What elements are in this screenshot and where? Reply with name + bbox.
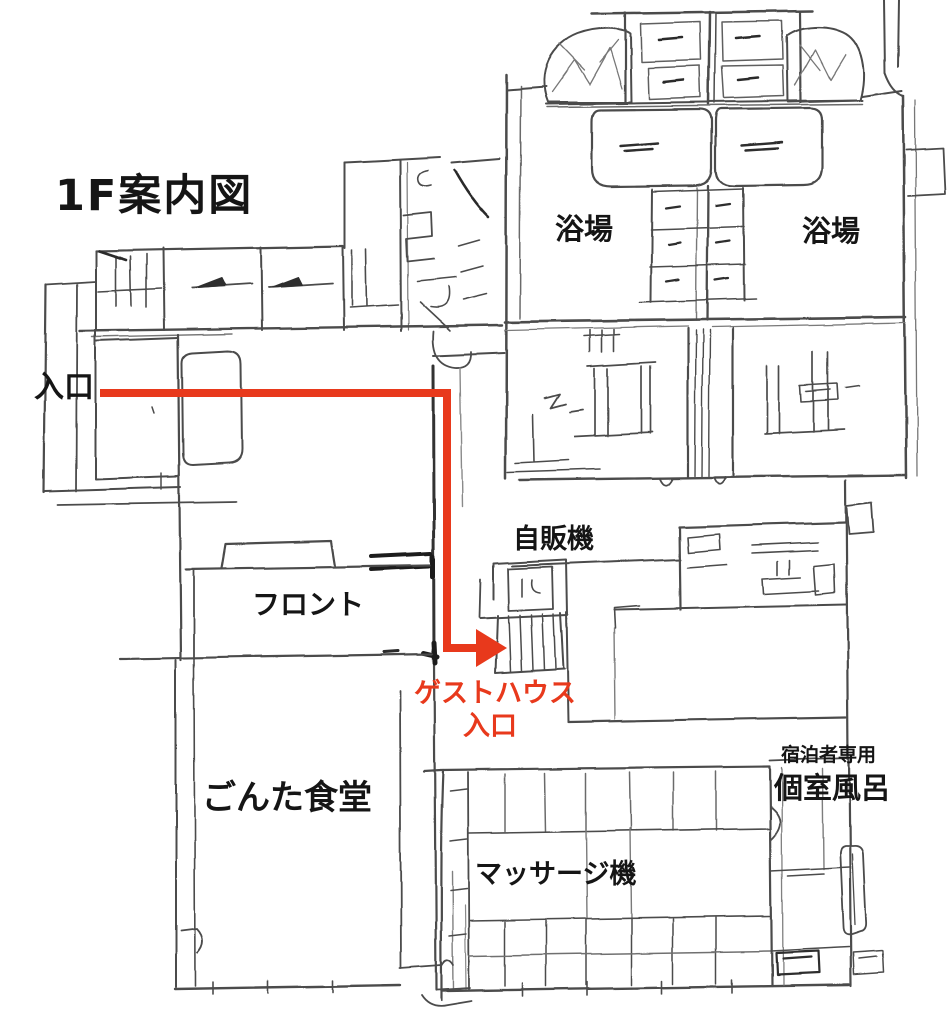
private-bath-label: 個室風呂 — [774, 773, 890, 803]
dining-hall-label: ごんた食堂 — [202, 781, 372, 817]
route-arrow — [100, 393, 507, 667]
page-title: 1F案内図 — [55, 174, 253, 219]
entrance-label: 入口 — [34, 372, 94, 404]
front-desk-label: フロント — [252, 590, 364, 619]
vending-machine-label: 自販機 — [513, 526, 594, 554]
bath-left-label: 浴場 — [555, 214, 613, 244]
sketch-layer — [44, 0, 945, 1006]
massage-machine-label: マッサージ機 — [475, 861, 636, 889]
guesthouse-entrance-line2: 入口 — [414, 711, 566, 744]
bath-right-label: 浴場 — [802, 216, 860, 246]
entrance-porch — [44, 281, 242, 660]
guests-only-label: 宿泊者専用 — [781, 746, 876, 766]
guesthouse-entrance-label: ゲストハウス 入口 — [414, 678, 566, 744]
guesthouse-entrance-line1: ゲストハウス — [414, 678, 566, 711]
corridor-walls — [372, 353, 504, 990]
floor-map: 1F案内図 入口 浴場 浴場 自販機 フロント ゲストハウス 入口 ごんた食堂 … — [0, 0, 949, 1024]
